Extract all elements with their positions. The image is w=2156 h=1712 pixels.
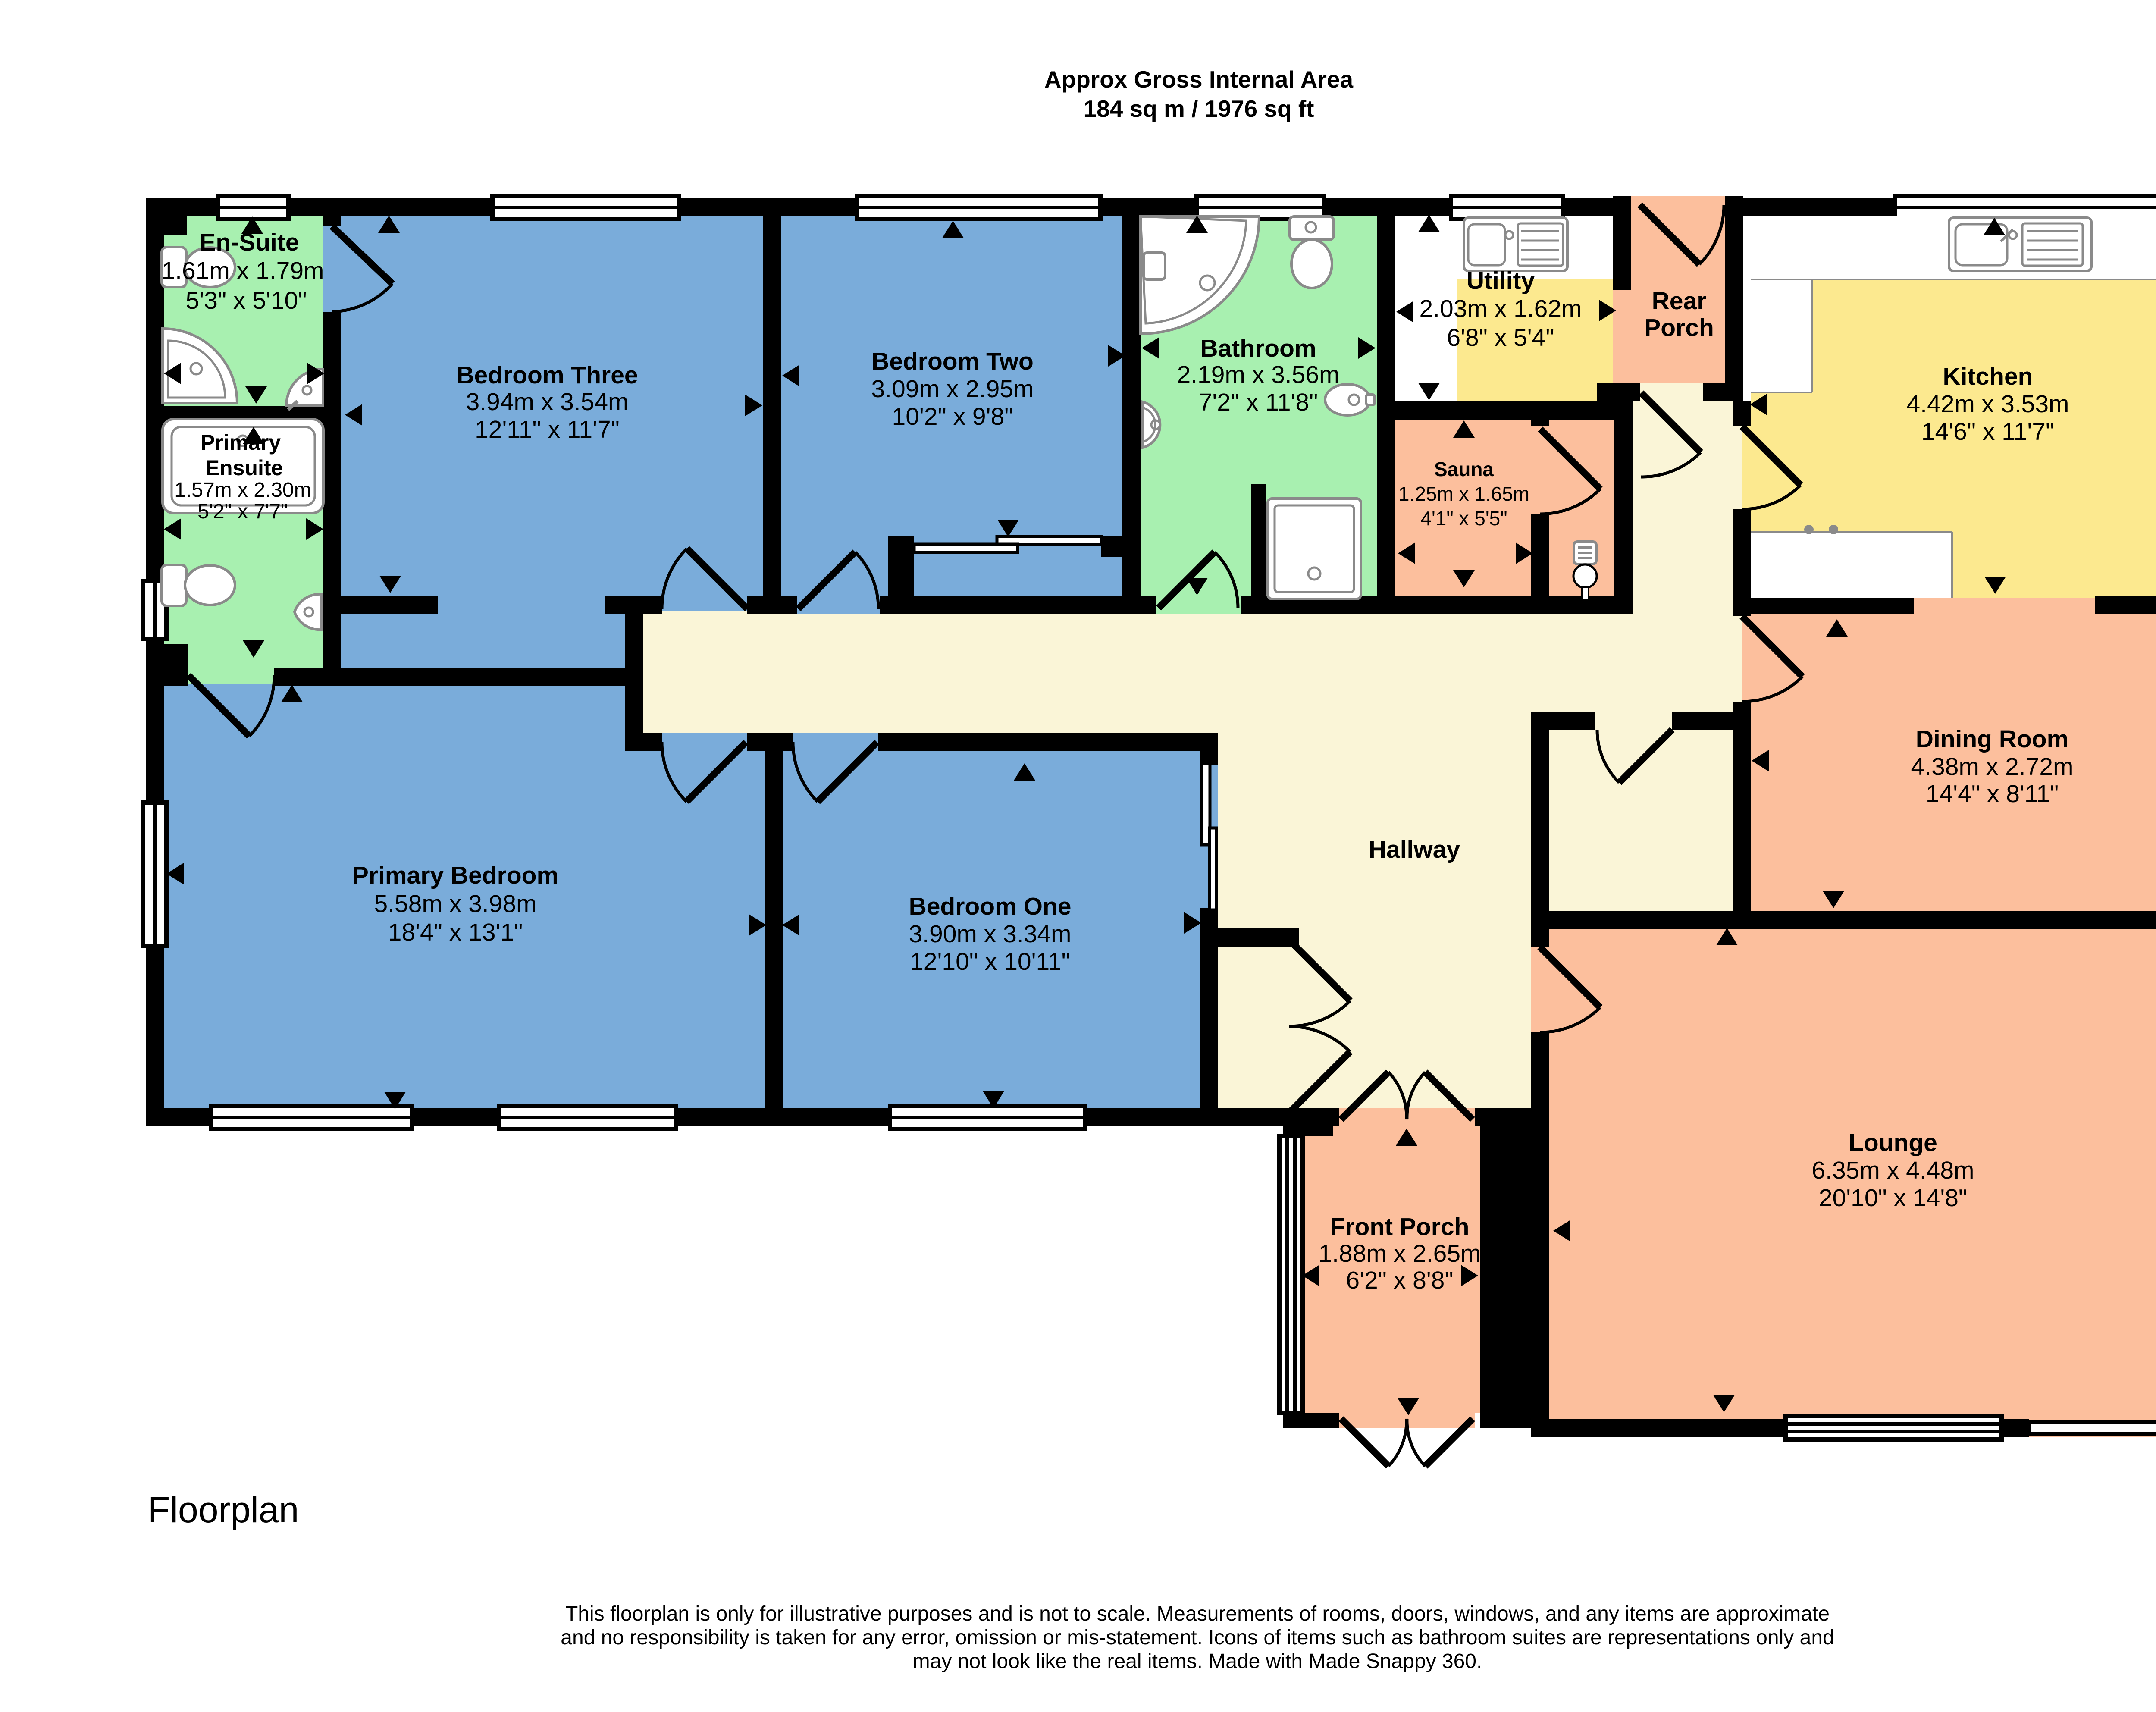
svg-text:Kitchen: Kitchen [1943,363,2033,390]
svg-text:Porch: Porch [1644,314,1714,342]
svg-text:Rear: Rear [1652,287,1707,315]
svg-text:14'6" x 11'7": 14'6" x 11'7" [1921,418,2054,445]
svg-text:1.61m x 1.79m: 1.61m x 1.79m [161,257,324,285]
svg-text:4'1" x 5'5": 4'1" x 5'5" [1420,507,1507,530]
svg-text:Dining Room: Dining Room [1916,725,2069,753]
svg-text:Hallway: Hallway [1369,836,1460,863]
svg-text:184 sq m / 1976 sq ft: 184 sq m / 1976 sq ft [1084,95,1314,122]
svg-text:6'8" x 5'4": 6'8" x 5'4" [1447,324,1554,351]
svg-text:4.38m x 2.72m: 4.38m x 2.72m [1911,753,2073,781]
svg-text:5'3" x 5'10": 5'3" x 5'10" [186,287,307,314]
svg-text:5'2" x 7'7": 5'2" x 7'7" [197,500,288,523]
svg-text:and no responsibility is taken: and no responsibility is taken for any e… [561,1626,1834,1649]
svg-text:Bedroom Two: Bedroom Two [871,348,1034,375]
svg-text:6.35m x 4.48m: 6.35m x 4.48m [1811,1157,1974,1184]
svg-text:12'10" x 10'11": 12'10" x 10'11" [910,948,1070,975]
svg-text:6'2" x 8'8": 6'2" x 8'8" [1346,1267,1453,1294]
svg-text:14'4" x 8'11": 14'4" x 8'11" [1926,780,2059,808]
svg-text:Approx Gross Internal Area: Approx Gross Internal Area [1044,66,1354,93]
svg-text:Bedroom One: Bedroom One [909,893,1072,920]
svg-text:Primary: Primary [201,430,281,455]
svg-text:18'4" x 13'1": 18'4" x 13'1" [388,919,523,946]
svg-text:Bedroom Three: Bedroom Three [456,361,638,389]
svg-text:2.19m x 3.56m: 2.19m x 3.56m [1177,361,1339,389]
svg-text:1.25m x 1.65m: 1.25m x 1.65m [1398,483,1529,505]
svg-text:4.42m x 3.53m: 4.42m x 3.53m [1906,390,2069,418]
svg-text:3.94m x 3.54m: 3.94m x 3.54m [466,388,628,416]
svg-text:1.88m x 2.65m: 1.88m x 2.65m [1318,1240,1481,1267]
svg-text:2.03m x 1.62m: 2.03m x 1.62m [1419,295,1582,323]
svg-text:Bathroom: Bathroom [1200,335,1316,362]
svg-text:may not look like the real ite: may not look like the real items. Made w… [913,1650,1482,1673]
svg-text:1.57m x 2.30m: 1.57m x 2.30m [174,479,311,502]
svg-text:Front Porch: Front Porch [1330,1213,1470,1241]
svg-text:Lounge: Lounge [1849,1129,1937,1157]
svg-text:En-Suite: En-Suite [199,229,299,256]
svg-text:3.09m x 2.95m: 3.09m x 2.95m [871,375,1034,403]
svg-text:Floorplan: Floorplan [148,1489,299,1530]
svg-text:5.58m x 3.98m: 5.58m x 3.98m [374,890,536,918]
svg-text:3.90m x 3.34m: 3.90m x 3.34m [909,920,1071,948]
svg-text:7'2" x 11'8": 7'2" x 11'8" [1199,389,1318,416]
svg-text:Primary Bedroom: Primary Bedroom [352,862,558,889]
svg-text:Utility: Utility [1467,267,1535,295]
svg-text:10'2" x 9'8": 10'2" x 9'8" [892,403,1013,430]
svg-text:Ensuite: Ensuite [205,456,283,480]
svg-text:20'10" x 14'8": 20'10" x 14'8" [1819,1184,1967,1212]
svg-text:12'11" x 11'7": 12'11" x 11'7" [475,416,620,443]
svg-text:This floorplan is only for ill: This floorplan is only for illustrative … [565,1602,1830,1625]
svg-text:Sauna: Sauna [1434,458,1494,480]
